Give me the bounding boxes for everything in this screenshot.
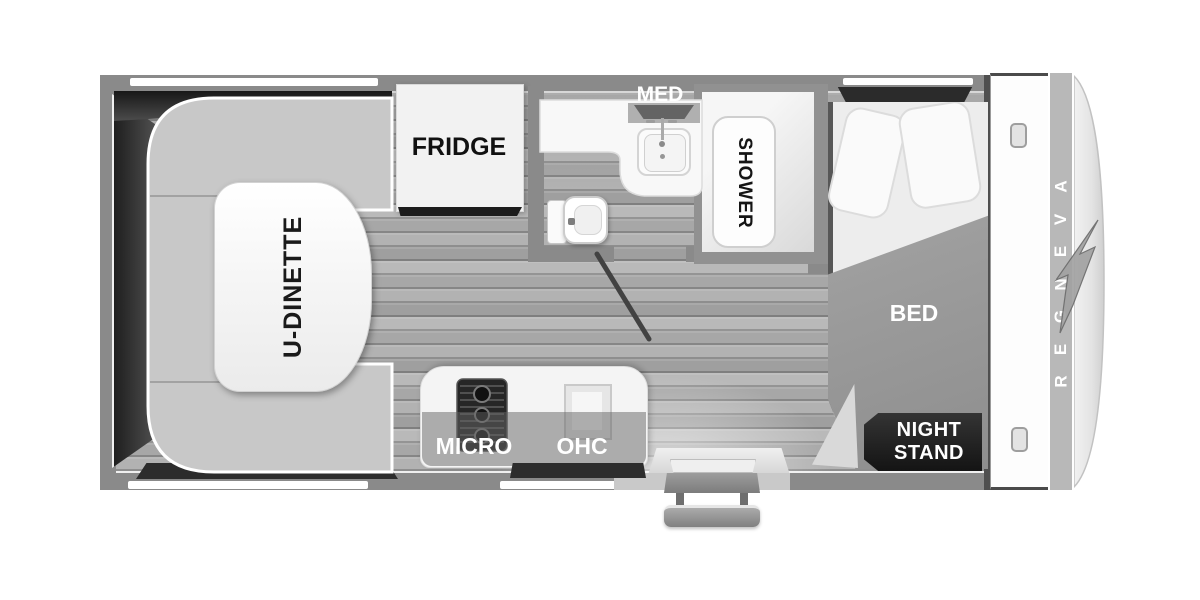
pillow: [825, 104, 909, 221]
entry-step-upper-tread: [670, 459, 756, 473]
toilet-bowl-inner: [574, 205, 602, 235]
micro-label: MICRO: [428, 433, 520, 459]
nightstand-label-line2: STAND: [894, 442, 964, 465]
faucet-spout: [661, 118, 664, 140]
bathroom-wall-left: [528, 86, 544, 262]
latch-icon: [1011, 427, 1028, 452]
brand-letter: V: [1053, 213, 1070, 224]
window-shade-bed-head: [835, 87, 975, 103]
faucet-handle-left: [646, 120, 655, 123]
fridge-shadow: [398, 207, 522, 216]
latch-icon: [1010, 123, 1027, 148]
nightstand-label-line1: NIGHT: [897, 419, 962, 442]
brand-letters: AVENGER: [1046, 178, 1076, 390]
window-top-dinette: [130, 78, 378, 86]
nightstand: NIGHT STAND: [864, 413, 982, 471]
dinette-label: U-DINETTE: [278, 187, 308, 387]
brand-letter: A: [1053, 180, 1070, 192]
trailer-floorplan: U-DINETTE FRIDGE MED SHOWER BED: [0, 0, 1200, 600]
rear-window: [112, 94, 160, 468]
brand-letter: R: [1053, 375, 1070, 387]
med-cabinet-recess: [634, 105, 694, 119]
window-shade-bottom-left: [136, 463, 398, 479]
ohc-label: OHC: [548, 433, 616, 459]
entry-step-upper: [664, 473, 760, 493]
brand-letter: E: [1053, 246, 1070, 257]
faucet-base: [659, 141, 665, 147]
sink-drain: [660, 154, 665, 159]
pillow: [896, 99, 983, 211]
bed-label: BED: [884, 300, 944, 326]
faucet-handle-right: [668, 120, 677, 123]
window-top-bed: [843, 78, 973, 85]
brand-letter: E: [1053, 343, 1070, 354]
toilet-flush: [568, 218, 575, 225]
window-bottom-dinette: [128, 481, 368, 489]
fridge-label: FRIDGE: [396, 132, 522, 162]
med-label: MED: [620, 84, 700, 106]
counter-shadow: [510, 463, 646, 478]
bathroom-wall-bottom: [528, 246, 614, 262]
entry-step-lower: [664, 505, 760, 527]
brand-letter: N: [1053, 278, 1070, 290]
brand-letter: G: [1052, 310, 1069, 323]
sink-basin: [644, 134, 686, 172]
shower-label: SHOWER: [733, 118, 755, 248]
